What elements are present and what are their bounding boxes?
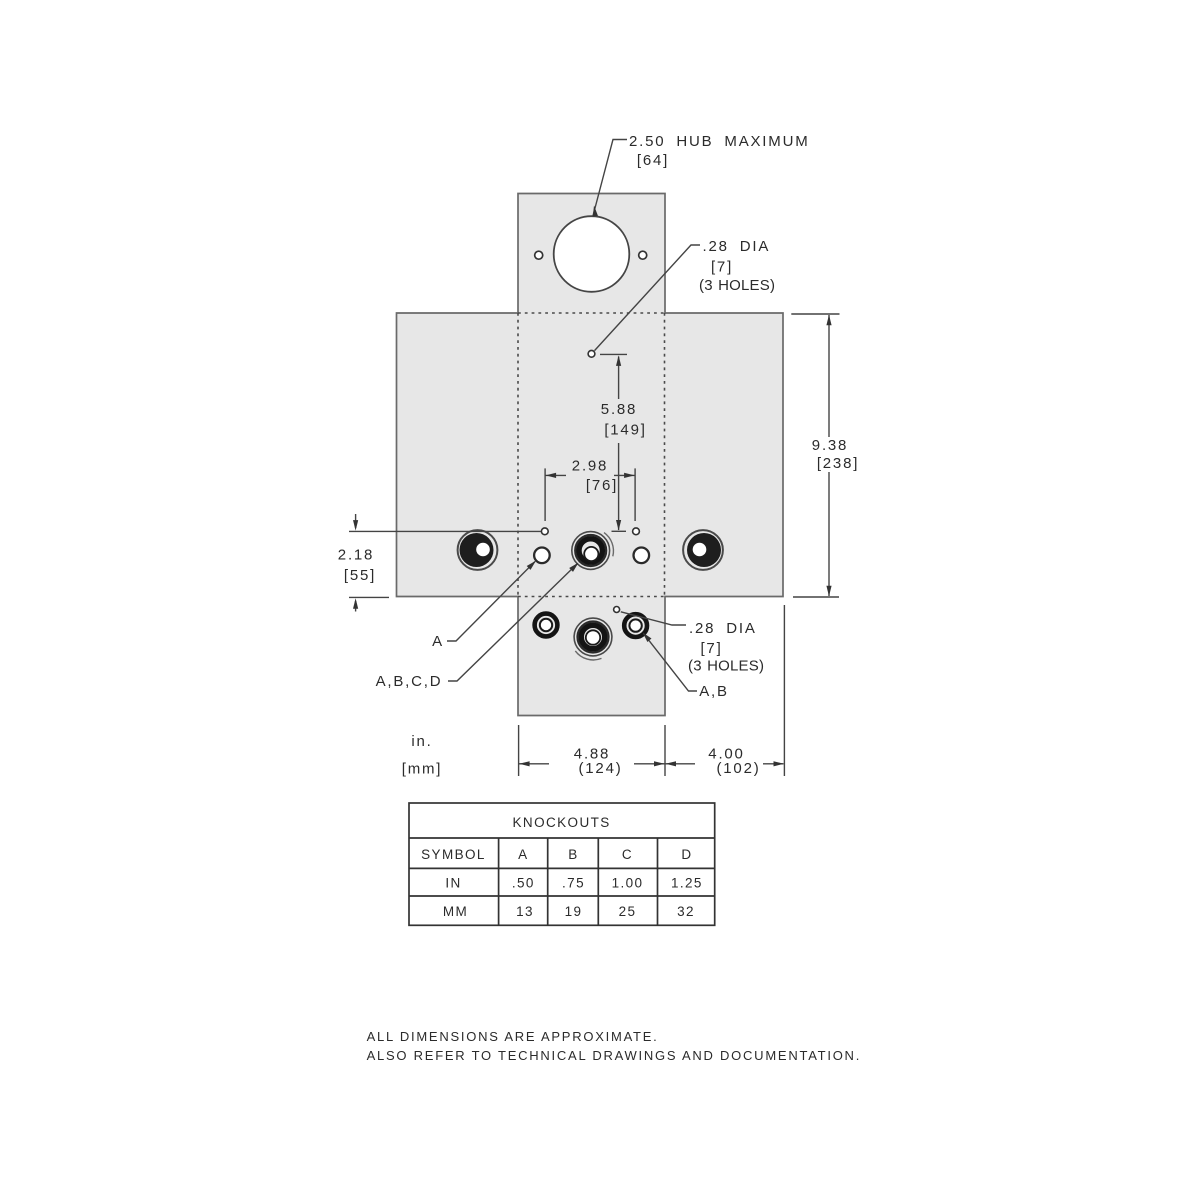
svg-text:IN: IN: [445, 876, 461, 891]
svg-text:.50: .50: [512, 876, 535, 891]
svg-text:13: 13: [516, 904, 534, 919]
svg-text:KNOCKOUTS: KNOCKOUTS: [513, 815, 611, 830]
svg-text:[64]: [64]: [637, 152, 669, 169]
svg-text:ALL DIMENSIONS ARE APPROXIMATE: ALL DIMENSIONS ARE APPROXIMATE.: [367, 1029, 659, 1044]
svg-text:.75: .75: [562, 876, 585, 891]
svg-text:32: 32: [677, 904, 695, 919]
svg-text:(3 HOLES): (3 HOLES): [688, 658, 764, 675]
svg-text:C: C: [622, 847, 633, 862]
svg-text:[mm]: [mm]: [402, 761, 443, 778]
svg-text:A,B: A,B: [699, 683, 729, 700]
svg-text:B: B: [568, 847, 578, 862]
svg-text:(102): (102): [716, 760, 760, 777]
svg-text:A: A: [518, 847, 528, 862]
svg-text:2.98: 2.98: [572, 458, 608, 475]
svg-text:9.38: 9.38: [812, 437, 848, 454]
svg-text:SYMBOL: SYMBOL: [421, 847, 486, 862]
svg-text:[149]: [149]: [604, 422, 646, 439]
svg-text:[55]: [55]: [344, 567, 376, 584]
svg-text:.28 DIA: .28 DIA: [703, 238, 771, 255]
svg-text:[7]: [7]: [700, 640, 722, 657]
svg-text:(124): (124): [578, 760, 622, 777]
svg-text:2.50 HUB MAXIMUM: 2.50 HUB MAXIMUM: [629, 133, 810, 150]
svg-text:D: D: [681, 847, 692, 862]
svg-text:25: 25: [619, 904, 637, 919]
svg-text:ALSO REFER TO TECHNICAL DRAWIN: ALSO REFER TO TECHNICAL DRAWINGS AND DOC…: [367, 1048, 861, 1063]
svg-text:19: 19: [565, 904, 583, 919]
svg-text:(3 HOLES): (3 HOLES): [699, 277, 775, 294]
svg-text:A: A: [432, 633, 444, 650]
svg-text:2.18: 2.18: [338, 547, 374, 564]
svg-text:in.: in.: [411, 733, 432, 750]
svg-text:[238]: [238]: [817, 455, 859, 472]
svg-text:[76]: [76]: [586, 477, 618, 494]
svg-text:1.25: 1.25: [671, 876, 703, 891]
svg-text:A,B,C,D: A,B,C,D: [376, 673, 443, 690]
svg-text:.28 DIA: .28 DIA: [689, 620, 757, 637]
svg-text:MM: MM: [443, 904, 468, 919]
svg-text:[7]: [7]: [711, 259, 733, 276]
svg-text:5.88: 5.88: [601, 401, 637, 418]
svg-text:1.00: 1.00: [612, 876, 644, 891]
